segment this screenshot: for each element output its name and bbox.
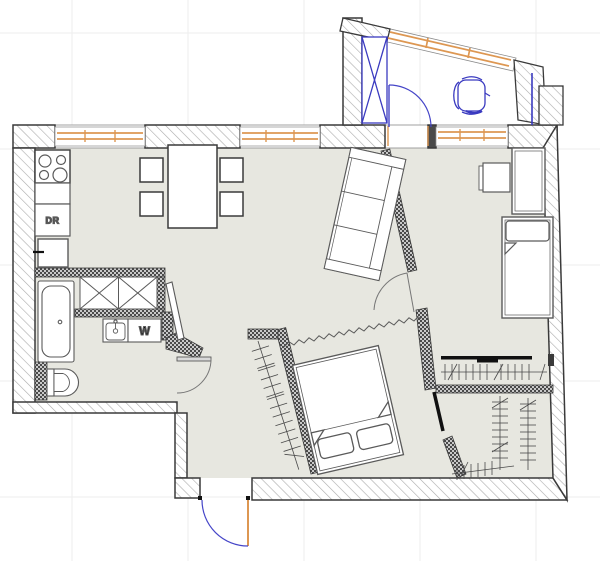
washing-machine: W [128, 319, 161, 342]
dryer-unit: DR [35, 204, 70, 236]
wall-hall-left [175, 413, 187, 478]
window-living [240, 127, 320, 146]
dryer-label: DR [46, 216, 60, 226]
hall-wardrobe [80, 277, 157, 309]
single-bed [502, 217, 553, 318]
wall-entry-block [175, 478, 200, 498]
floor-plan-canvas: DR [0, 0, 600, 561]
balcony-cabinet [362, 37, 387, 123]
partition-kitchen-bath [35, 268, 165, 277]
pillow [506, 221, 549, 241]
partition-bedroom-stub [248, 329, 278, 339]
dining-chair [140, 158, 163, 182]
bathtub [38, 281, 74, 362]
closet-shelf-thick [477, 358, 498, 363]
dining-chair [140, 192, 163, 216]
partition-below-wardrobe [75, 309, 165, 317]
fridge [33, 239, 68, 267]
partition-toilet-stub [35, 362, 47, 400]
washer-label: W [139, 326, 150, 338]
sink [103, 319, 128, 342]
wall-bottom-left [13, 402, 177, 413]
toilet [47, 369, 79, 396]
partition-closet-divider [436, 385, 553, 393]
rail-bracket [548, 354, 554, 366]
nightstand [479, 163, 510, 192]
dining-chair [220, 192, 243, 216]
stove [35, 150, 70, 183]
wall-step [539, 86, 563, 125]
dining-chair [220, 158, 243, 182]
wall-pier [320, 125, 385, 148]
windows [55, 126, 508, 146]
floor-plan: DR [0, 0, 600, 561]
dining-table [168, 145, 217, 228]
window-kitchen [55, 127, 145, 146]
wall-pier [13, 125, 55, 148]
tall-cabinet [512, 148, 545, 214]
kitchen-counter [35, 183, 70, 204]
wall-bottom [252, 478, 567, 500]
partition-wardrobe-right [157, 277, 165, 309]
door-jamb [428, 125, 436, 148]
kitchen: DR [33, 150, 70, 267]
window-bedroom2 [436, 127, 508, 146]
wall-left [13, 148, 35, 413]
